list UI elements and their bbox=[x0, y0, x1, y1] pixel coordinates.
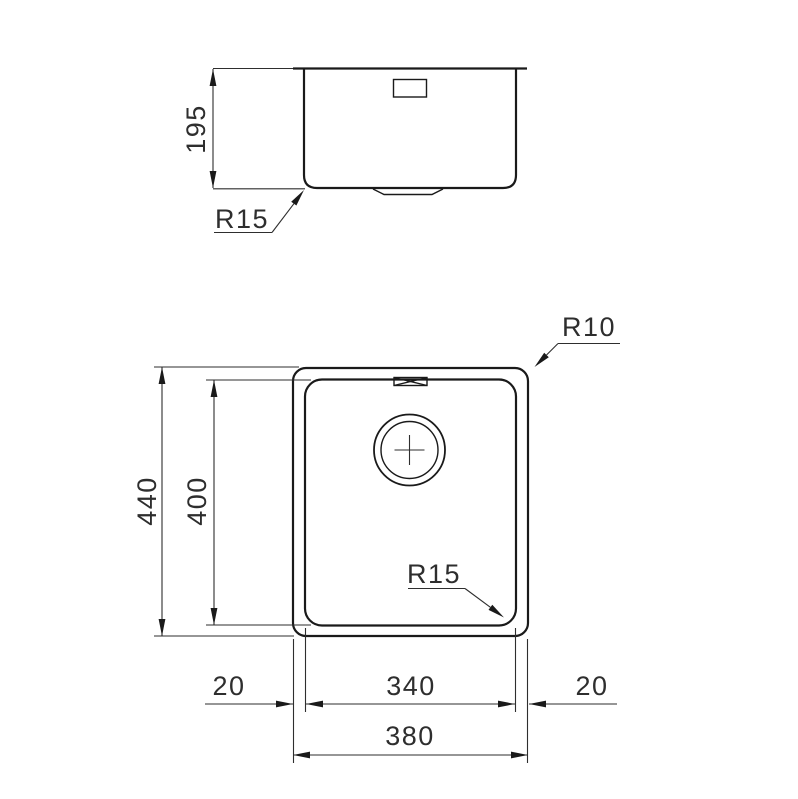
side-view: 195 R15 bbox=[181, 69, 527, 235]
dim-arrow-up bbox=[159, 367, 166, 384]
overall-width-label: 380 bbox=[385, 721, 435, 751]
sink-dimension-drawing: 195 R15 440 400 bbox=[0, 0, 798, 799]
dim-arrow-left bbox=[529, 701, 546, 708]
leader-line bbox=[547, 344, 559, 356]
side-height-label: 195 bbox=[181, 104, 211, 154]
bowl-depth-label: 400 bbox=[182, 476, 212, 526]
side-corner-radius-label: R15 bbox=[215, 204, 269, 234]
overall-depth-label: 440 bbox=[132, 476, 162, 526]
left-rim-label: 20 bbox=[212, 671, 245, 701]
plan-view: 440 400 R10 R15 20 340 20 bbox=[132, 312, 620, 763]
leader-arrow bbox=[291, 190, 304, 206]
outer-corner-radius-label: R10 bbox=[562, 312, 616, 342]
sink-body-outline bbox=[304, 69, 516, 188]
leader-line bbox=[272, 204, 294, 233]
dim-arrow-right bbox=[276, 701, 293, 708]
dim-arrow-left bbox=[306, 701, 323, 708]
right-rim-label: 20 bbox=[575, 671, 608, 701]
dim-arrow-up bbox=[210, 69, 217, 86]
bowl-width-label: 340 bbox=[386, 671, 436, 701]
drain-recess-profile bbox=[373, 189, 443, 195]
technical-drawing-canvas: 195 R15 440 400 bbox=[0, 0, 798, 799]
outer-rim-outline bbox=[293, 368, 528, 636]
dim-arrow-down bbox=[211, 608, 218, 625]
dim-arrow-down bbox=[210, 171, 217, 188]
overflow-hole bbox=[394, 80, 427, 98]
dim-arrow-down bbox=[159, 619, 166, 636]
dim-arrow-left bbox=[293, 752, 310, 759]
leader-line bbox=[465, 589, 490, 608]
dim-arrow-right bbox=[511, 752, 528, 759]
dim-arrow-up bbox=[211, 380, 218, 397]
leader-arrow bbox=[489, 605, 505, 618]
bowl-corner-radius-label: R15 bbox=[407, 559, 461, 589]
dim-arrow-right bbox=[498, 701, 515, 708]
